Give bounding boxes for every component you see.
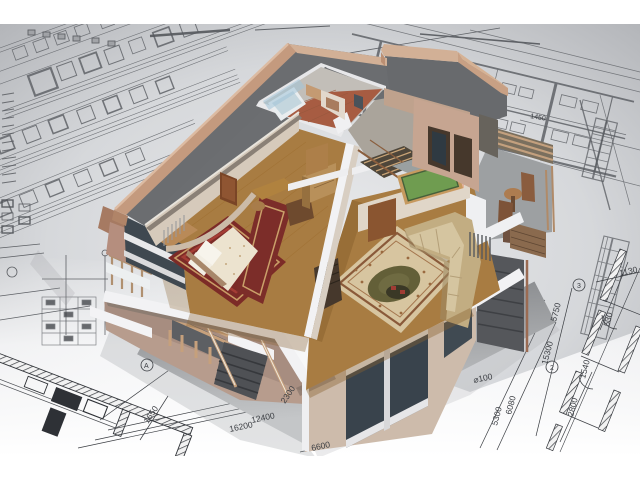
svg-text:A: A: [144, 363, 149, 370]
svg-text:3: 3: [577, 283, 581, 290]
svg-text:2: 2: [550, 365, 554, 372]
